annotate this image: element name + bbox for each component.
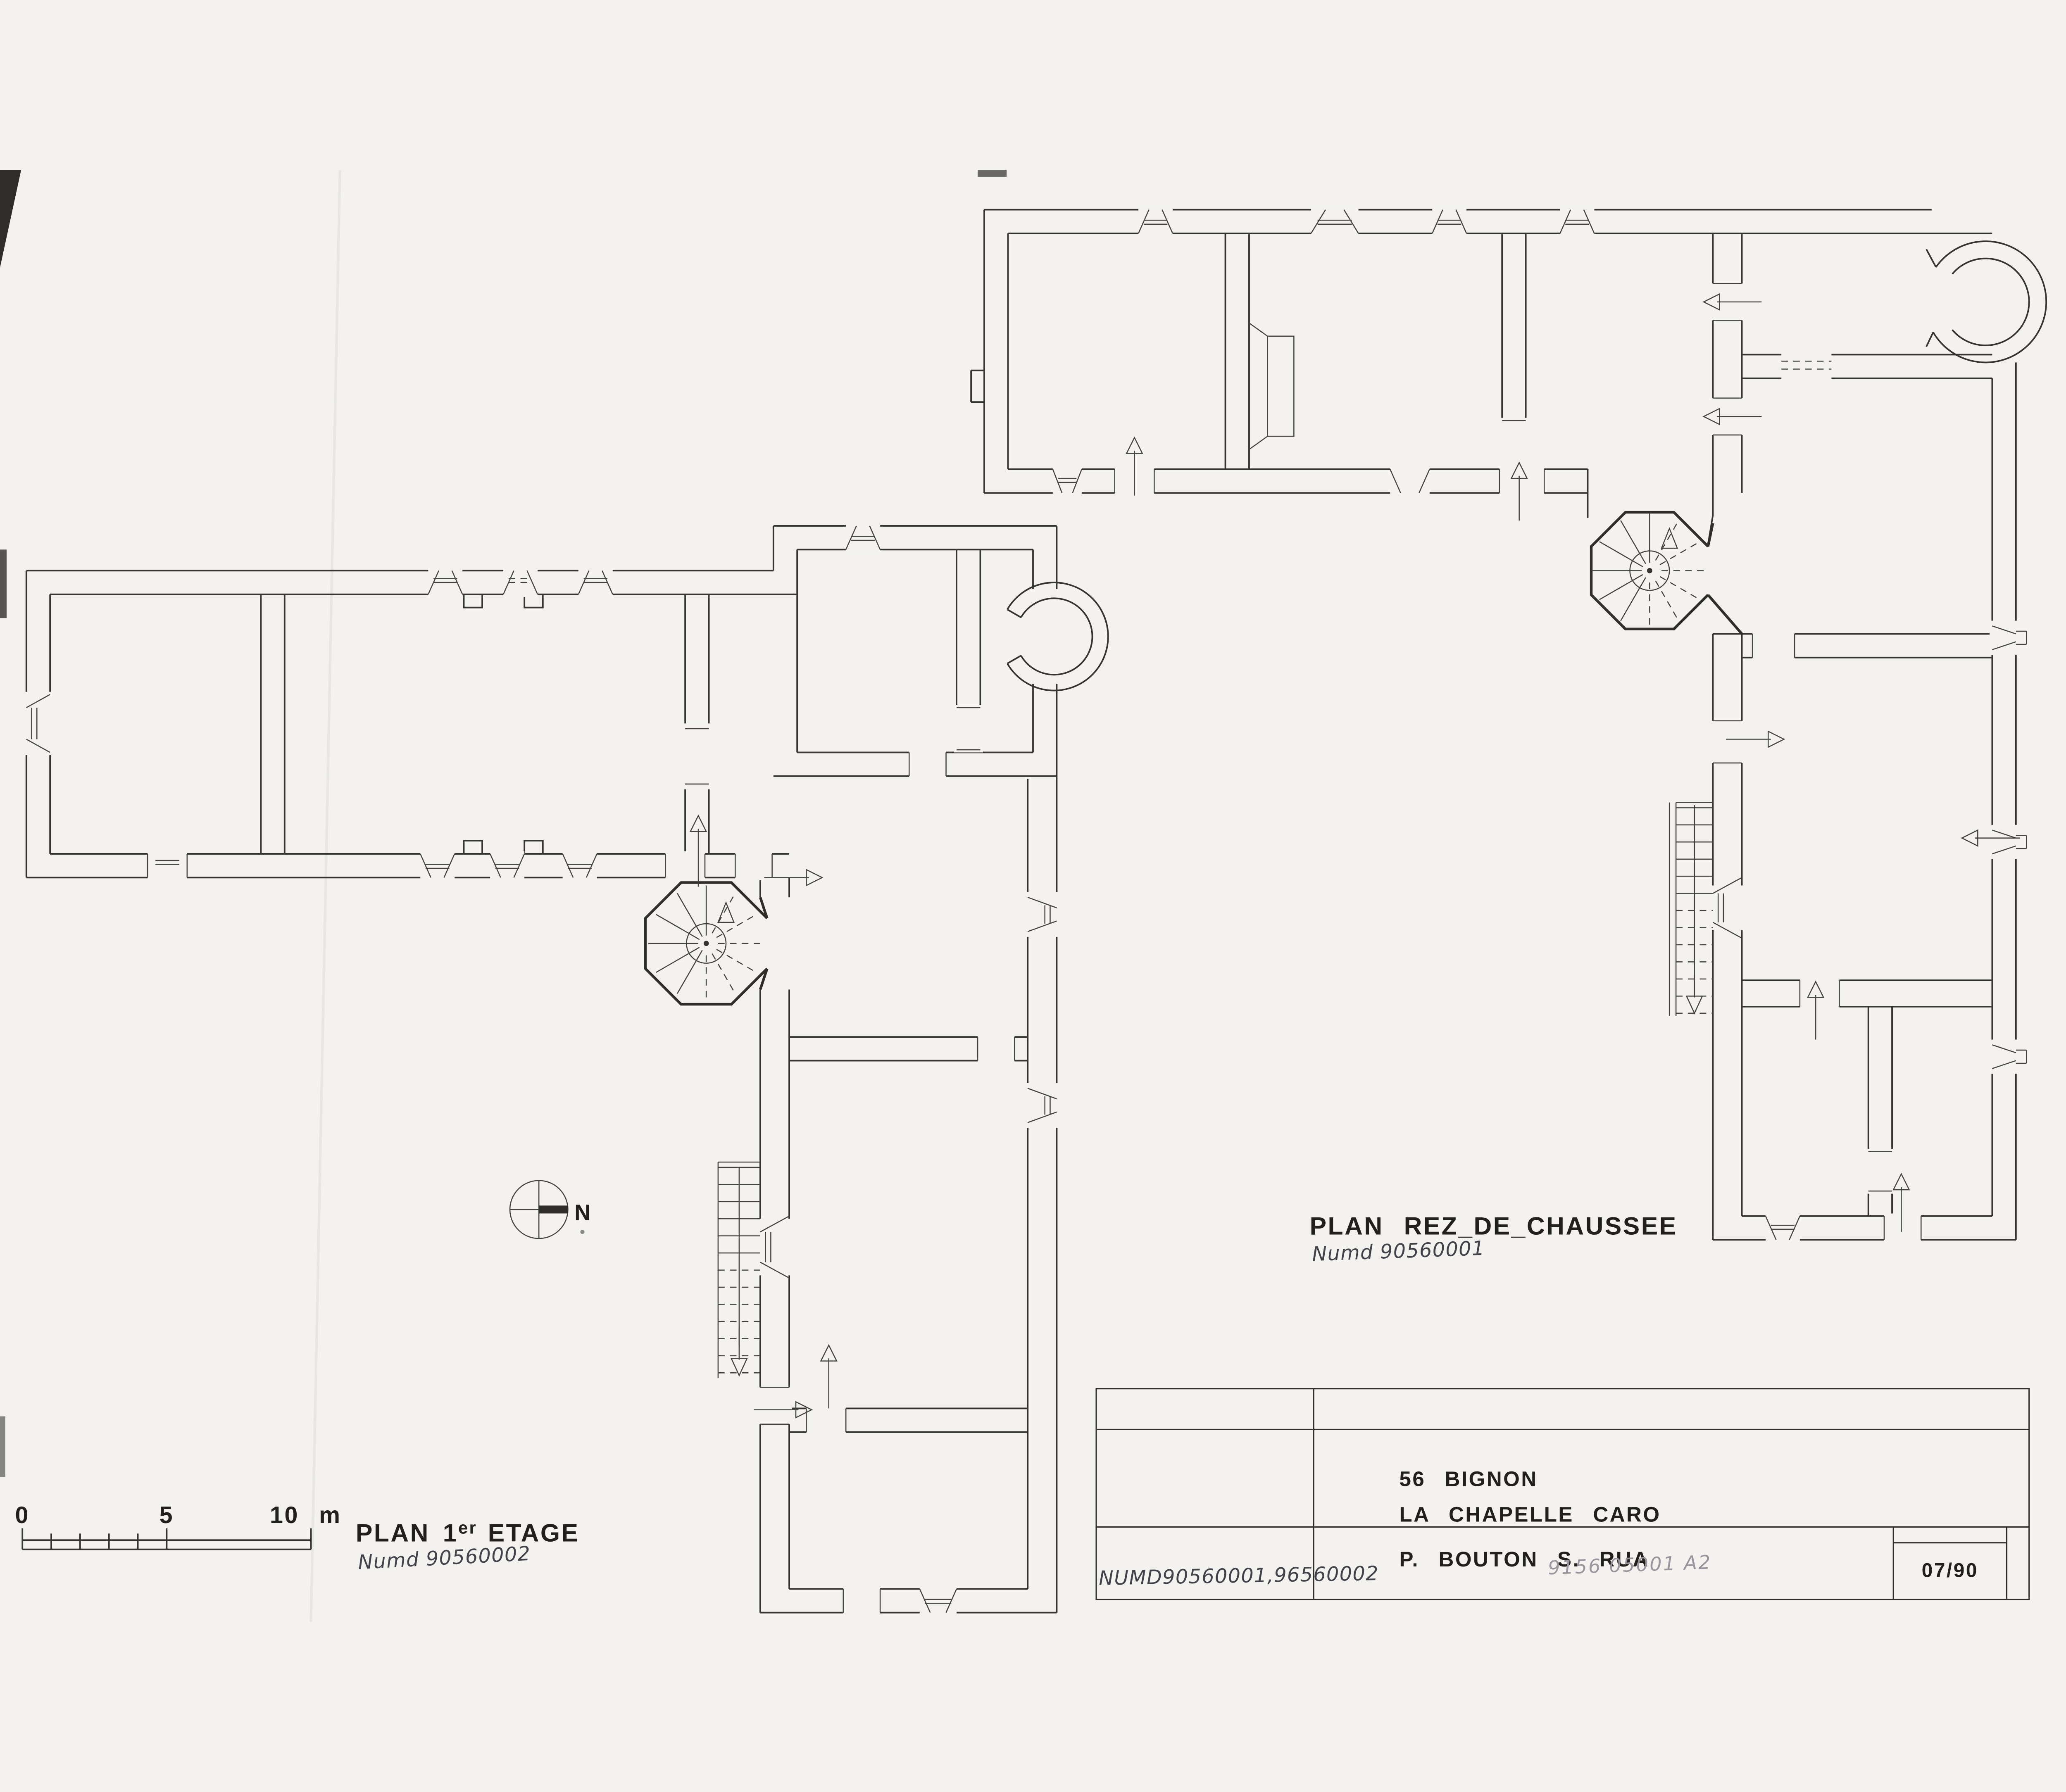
title-block-date: 07/90 [1922,1560,1978,1582]
first-floor-title-word: PLAN [356,1519,430,1547]
title-block-handwritten-numbers: NUMD90560001,96560002 [1099,1562,1379,1590]
first-floor-title-rest: ETAGE [488,1519,580,1547]
first-floor-title-superscript: er [458,1518,477,1537]
scale-label-10m: 10 m [270,1502,342,1528]
scale-label-0: 0 [15,1502,29,1528]
scale-label-5: 5 [159,1502,174,1528]
ground-floor-plan-title: PLAN REZ_DE_CHAUSSEE [1310,1212,1678,1240]
architectural-drawing: N 0 5 10 m PLAN1erETAGE Numd 90560002 PL… [0,0,2066,1792]
title-block-commune: LA CHAPELLE CARO [1399,1503,1661,1526]
first-floor-title-number: 1 [443,1519,458,1547]
drawing-sheet: N 0 5 10 m PLAN1erETAGE Numd 90560002 PL… [0,0,2066,1792]
compass-dot [580,1230,584,1234]
north-pointer-bar [539,1205,568,1213]
title-block-location: 56 BIGNON [1399,1467,1538,1491]
north-label: N [574,1200,592,1225]
